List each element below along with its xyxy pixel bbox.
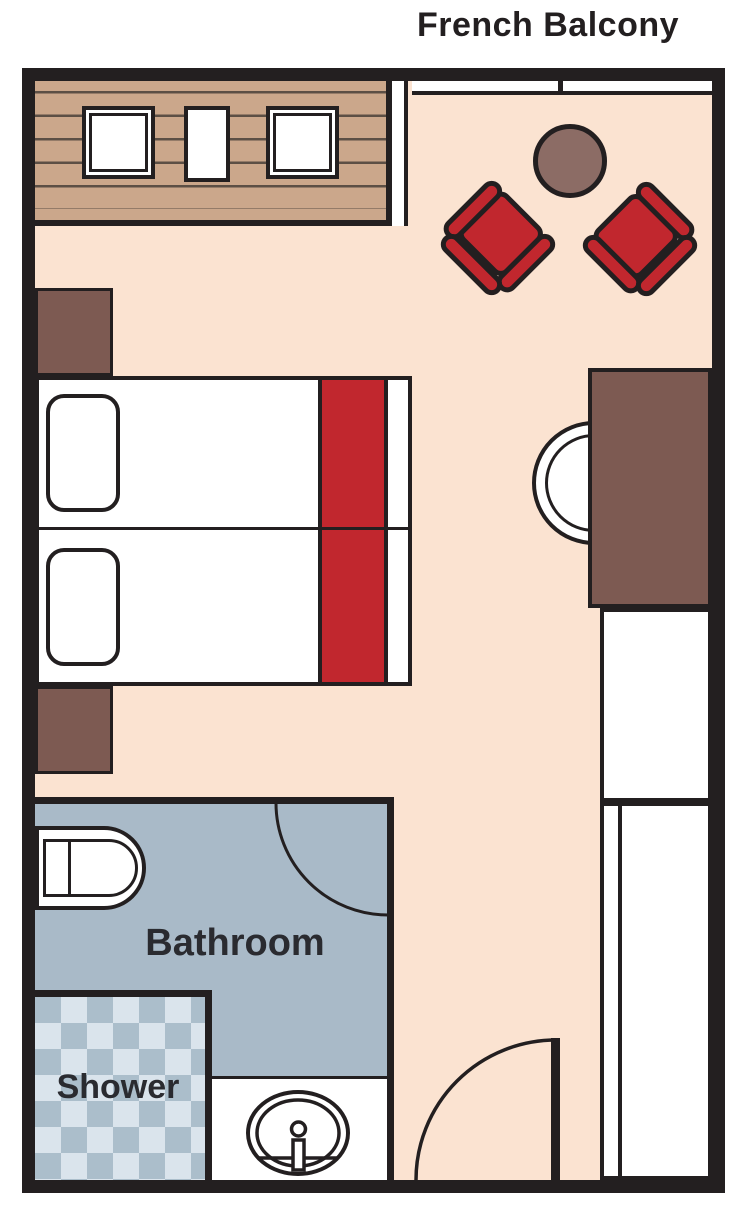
plan-title: French Balcony [368, 6, 728, 45]
cabin-floor-plan: French Balcony [0, 0, 737, 1205]
cabin-outer-walls [22, 68, 725, 1193]
